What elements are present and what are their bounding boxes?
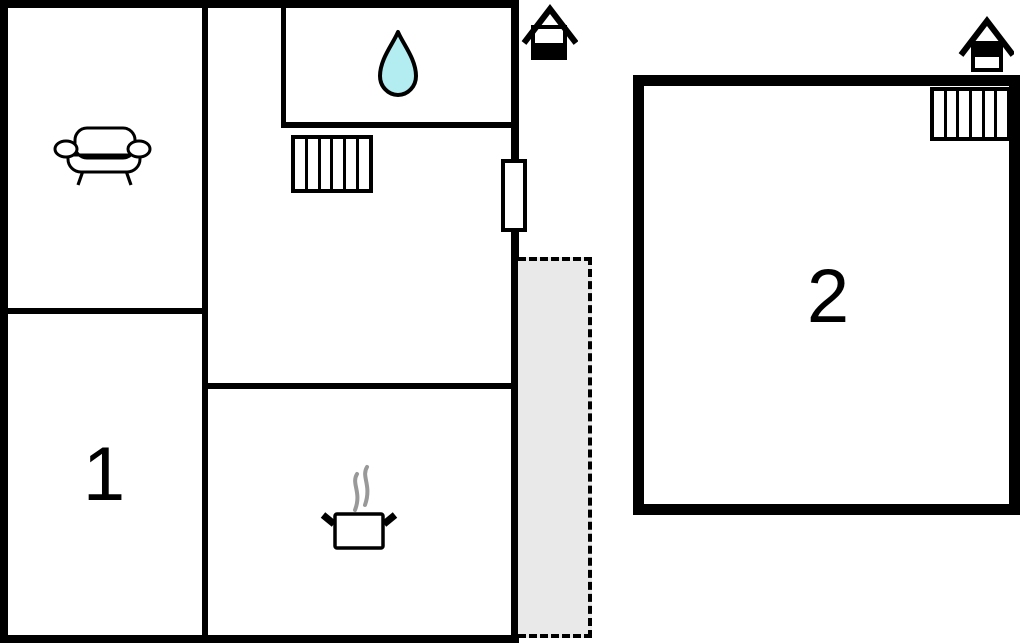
floor-plan: 1 2 <box>0 0 1024 643</box>
steam-icon <box>355 467 367 510</box>
radiator-icon <box>291 135 373 193</box>
unit1-label: 1 <box>72 437 136 513</box>
unit1-wall-bottom <box>0 635 519 643</box>
unit1-bathroom-wall-left <box>281 0 286 127</box>
cooking-pot-icon <box>315 460 400 555</box>
entrance-icon <box>956 14 1014 72</box>
radiator-icon <box>930 87 1011 141</box>
unit2-label: 2 <box>796 259 860 335</box>
water-drop-icon <box>375 28 421 100</box>
unit1-bathroom-wall-bottom <box>281 122 511 128</box>
unit1-interior-wall-vertical <box>202 0 208 643</box>
unit1-wall-left <box>0 0 8 643</box>
terrace-area <box>518 257 592 638</box>
unit1-interior-wall-kitchen <box>202 383 517 389</box>
unit1-wall-top <box>0 0 519 8</box>
sofa-icon <box>52 118 152 188</box>
entrance-icon <box>520 4 578 62</box>
unit1-interior-wall-livingroom <box>0 308 206 314</box>
door-marker <box>501 159 527 232</box>
